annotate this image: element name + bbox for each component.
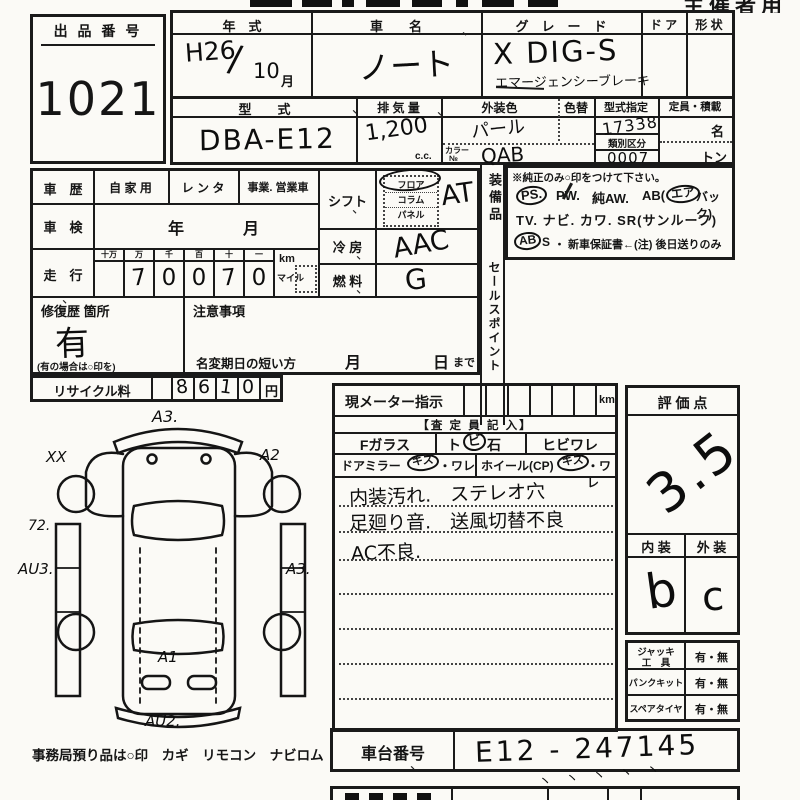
chassis-number-label: 車台番号 [333,740,453,764]
mileage-col-100k: 十万 [95,249,123,260]
history-label: 車 歴 [33,179,93,198]
mirror-label: ドアミラー [341,457,401,474]
fglass-stonechip-post: 石 [487,435,501,455]
repair-note: (有の場合は○印を) [37,359,116,373]
mileage-digit: 0 [185,265,213,291]
fglass-crack-option: ヒビワレ [525,435,615,455]
stonechip-circle-mark: ビ [462,431,487,452]
equipment-row2: TV. ナビ. カワ. SR(サンルーフ) [516,210,717,229]
fglass-stonechip-circled: ビ [463,432,486,451]
title-fragment [302,0,332,7]
jack-presence-value: 有・無 [686,649,737,665]
mileage-label: 走 行 [33,265,93,284]
wheel-scratch-circled: キズ [557,454,589,471]
meter-label: 現メーター指示 [345,392,443,412]
wheel-label: ホイール(CP) [481,457,554,474]
equipment-box: ※純正のみ○印をつけて下さい。 PS. PW. 純AW. AB( エア バック)… [505,165,735,260]
damage-annotation-rear-bumper: AU2. [145,712,181,730]
diagram-footer-note: 事務局預り品は○印 カギ リモコン ナビロム [32,744,324,764]
equipment-abs: AB [514,232,541,250]
cut-off-label-fragment [393,793,407,800]
front-wheel-right [264,476,300,512]
color-value: パール [470,112,526,144]
damage-annotation-front: A3. [152,407,178,426]
check-tick: 、 [410,754,423,773]
recycle-digit: 8 [170,375,194,399]
history-private: 自 家 用 [93,179,168,196]
mirror-rest: ・ワレ [439,457,475,474]
chassis-number-row: 車台番号 E12 - 247145 [330,728,740,772]
damage-annotation-right-side: A3. [286,560,311,578]
classification-header: 類別区分 [596,136,658,150]
mileage-digit: 0 [155,265,183,291]
equipment-warranty: ・ 新車保証書←(注) 後日送りのみ [554,236,721,252]
shift-option-column: コラム [385,193,437,208]
history-business: 事業. 営業車 [238,179,318,195]
assessor-entry-header: 【査 定 員 記 入】 [335,417,615,433]
check-tick: 、 [352,98,365,117]
exterior-grade-value: c [700,573,725,620]
title-fragment [412,0,442,7]
interior-grade-value: b [642,561,680,621]
chassis-number-value: E12 - 247145 [474,728,699,769]
mileage-col-1: 一 [245,249,273,260]
meter-km-unit: km [599,394,615,406]
capacity-load-unit: トン [701,147,727,166]
mirror-scratch-circled: キズ [407,454,439,471]
score-box: 評 価 点 3.5 内 装 外 装 b c [625,385,740,635]
damage-annotation-right-fender: A2 [260,446,280,464]
title-fragment [528,0,558,7]
sales-point-vertical-label: セールスポイント [486,261,503,373]
equipment-ab-prefix: AB( [642,188,665,203]
history-table: 車 歴 自 家 用 レ ン タ 事業. 営業車 車 検 年 月 走 行 十万 万… [30,168,480,375]
name-change-day: 日 [433,349,449,373]
recycle-fee-label: リサイクル料 [33,381,151,400]
title-fragment [342,0,354,7]
spare-tire-value: 有・無 [686,701,737,717]
shaken-month-unit: 月 [243,215,259,239]
jack-label-line2: 工 具 [628,655,684,669]
fuel-value: G [403,262,428,297]
interior-header: 内 装 [628,537,684,556]
mileage-digit: 7 [214,264,244,292]
wheel-scratch-circle-mark: キズ [556,452,590,472]
tools-box: ジャッキ 工 具 有・無 パンクキット 有・無 スペアタイヤ 有・無 [625,640,740,722]
shaken-year-unit: 年 [168,215,184,239]
auction-sheet: 主催者用 出 品 番 号 1021 年 式 車 名 グ レ ー ド ド ア 形 … [0,0,800,800]
wiper-right [202,455,211,464]
mileage-col-10k: 万 [125,249,153,260]
equipment-note: ※純正のみ○印をつけて下さい。 [512,170,665,185]
side-sill-left [56,524,80,696]
color-change-header: 色替 [558,99,594,116]
check-tick: 、 [437,100,450,119]
shape-header: 形 状 [686,16,732,33]
assessor-note-3: AC不良. [351,537,422,566]
name-change-month: 月 [345,349,361,373]
history-rental: レ ン タ [168,179,238,196]
capacity-persons-unit: 名 [711,121,724,140]
exterior-header: 外 装 [686,537,737,556]
year-header: 年 式 [173,16,311,35]
rear-window [133,620,224,654]
shaken-label: 車 検 [33,217,93,236]
caution-label: 注意事項 [193,301,245,320]
recycle-digit: 6 [193,376,215,398]
cut-off-label-fragment [369,793,383,800]
mileage-digit: 7 [124,264,154,292]
equipment-ps: PS. [516,186,547,205]
mirror-scratch-circle-mark: キズ [406,452,440,472]
mileage-unit-checkbox [295,265,317,293]
damage-annotation-trunk: A1 [158,648,178,666]
color-header: 外装色 [441,99,558,116]
capacity-header: 定員・積載 [658,99,732,114]
mileage-km-unit: km [279,253,295,265]
puncture-kit-value: 有・無 [686,675,737,691]
ps-circle-mark: PS. [515,184,548,206]
damage-annotation-left-side: 72. [28,518,50,534]
cut-off-label-fragment [417,793,431,800]
title-fragment [250,0,292,7]
wiper-left [148,455,157,464]
equipment-vertical-label: 装備品 [485,173,504,224]
lot-number-label: 出 品 番 号 [41,21,155,46]
displacement-header: 排 気 量 [356,99,441,116]
check-tick: 、 [462,20,475,39]
fglass-stonechip-pre: ト [447,435,461,455]
name-value: ノート [357,39,455,90]
lot-number-value: 1021 [33,72,163,126]
model-value: DBA-E12 [199,122,336,157]
year-month-value: 10 [253,59,280,83]
sill-seam [56,568,305,612]
tool-row-jack: ジャッキ 工 具 [628,643,684,668]
equipment-ab-airbag: エア [666,185,700,203]
spec-table: 年 式 車 名 グ レ ー ド ド ア 形 状 H26 / 10 月 ノート X… [170,10,735,165]
recycle-digit: 1 [214,375,239,400]
assessor-box: 現メーター指示 km 【査 定 員 記 入】 Fガラス ト ビ 石 ヒビワレ ド… [332,383,618,732]
front-wheel-left [58,476,94,512]
mileage-col-100: 百 [185,249,213,260]
check-tick: 、 [352,198,365,217]
grade-value: X DIG-S [492,33,618,71]
spare-tire-label: スペアタイヤ [628,702,684,715]
recycle-digit: 0 [237,376,259,398]
equipment-aw: 純AW. [592,188,629,207]
door-header: ド ア [641,16,686,33]
damage-annotation-left-lower: AU3. [18,560,54,578]
recycle-yen-unit: 円 [259,381,284,400]
check-tick: 、 [62,288,75,307]
fglass-label: Fガラス [335,435,435,455]
partial-bottom-row [330,786,740,800]
side-sill-right [281,524,305,696]
cut-off-label-fragment [345,793,359,800]
score-header: 評 価 点 [628,393,737,413]
tail-lamp-left [142,676,170,689]
wheel-rest: ・ワレ [587,457,615,491]
shift-option-panel: パネル [385,208,437,221]
title-fragment [482,0,514,7]
abs-circle-mark: AB [513,231,542,251]
name-header: 車 名 [311,16,481,35]
name-change-label: 名変期日の短い方 [196,353,296,372]
mileage-digit: 0 [245,265,273,291]
check-tick: 、 [356,244,369,263]
name-change-until: まで [453,354,475,370]
shift-value: AT [439,177,476,212]
score-value: 3.5 [635,417,751,527]
mileage-col-10: 十 [215,249,243,260]
model-header: 型 式 [173,99,356,118]
title-fragment [456,0,468,7]
mileage-col-1k: 千 [155,249,183,260]
shift-label: シフト [320,191,375,210]
cooling-value: AAC [391,224,452,264]
puncture-kit-label: パンクキット [628,676,684,689]
damage-annotation-left-fender: XX [46,448,67,466]
displacement-unit: c.c. [415,151,432,162]
title-fragment [366,0,400,7]
month-suffix: 月 [281,71,294,90]
lot-number-box: 出 品 番 号 1021 [30,14,166,164]
equipment-abs-rest: S [542,235,550,249]
check-tick: 、 [356,278,369,297]
rear-wheel-left [58,614,94,650]
windshield [132,501,224,540]
color-no-label2: № [449,154,458,163]
tail-lamp-right [188,676,216,689]
cut-off-title [250,0,700,7]
recycle-fee-row: リサイクル料 8 6 1 0 円 [30,375,283,402]
